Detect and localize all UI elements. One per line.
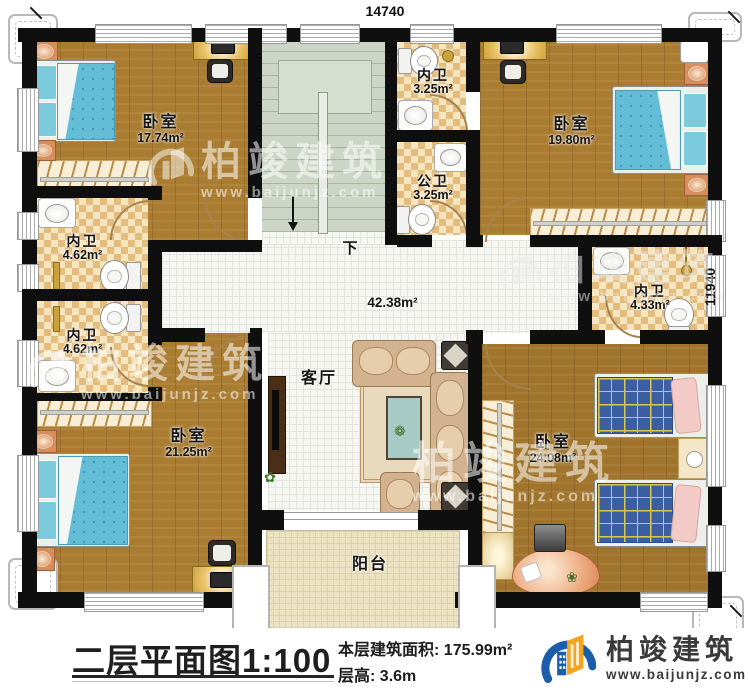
room-label-bath-left-lower: 内卫 4.62m² bbox=[40, 328, 125, 357]
headboard-cushion bbox=[683, 93, 707, 128]
stairs-down-label: 下 bbox=[336, 241, 366, 258]
room-label-hall-area: 42.38m² bbox=[340, 296, 445, 311]
window bbox=[17, 212, 39, 240]
room-area: 3.25m² bbox=[398, 189, 468, 203]
wall-segment bbox=[248, 510, 284, 530]
nightstand bbox=[684, 62, 710, 85]
nightstand bbox=[684, 174, 710, 196]
room-label-balcony: 阳台 bbox=[330, 556, 410, 574]
sink bbox=[398, 100, 433, 131]
room-area: 17.74m² bbox=[103, 132, 218, 146]
window bbox=[706, 385, 726, 487]
stair-arrow-head bbox=[288, 222, 298, 231]
window bbox=[640, 592, 708, 612]
room-label-bath-left-upper: 内卫 4.62m² bbox=[40, 234, 125, 263]
room-label-living: 客厅 bbox=[288, 370, 350, 388]
wall-segment bbox=[18, 592, 84, 608]
room-area: 4.33m² bbox=[608, 299, 692, 313]
wall-segment bbox=[285, 28, 300, 42]
light-pull bbox=[685, 247, 687, 267]
dimension-right: 11940 bbox=[702, 248, 722, 326]
room-label-bath-right: 内卫 4.33m² bbox=[608, 284, 692, 313]
desk-chair bbox=[208, 540, 236, 566]
room-name: 卧室 bbox=[495, 434, 611, 452]
window bbox=[95, 24, 192, 44]
desk-chair bbox=[207, 59, 233, 83]
wardrobe bbox=[530, 208, 710, 237]
end-table bbox=[441, 341, 470, 370]
floor-plan-page: ❀ ✿ ❁ bbox=[0, 0, 750, 697]
wall-segment bbox=[22, 150, 37, 212]
window bbox=[17, 88, 39, 152]
window bbox=[84, 592, 204, 612]
wall-segment bbox=[148, 240, 262, 252]
brand-logo-icon bbox=[540, 630, 596, 688]
sink bbox=[434, 143, 467, 172]
wall-segment bbox=[150, 328, 205, 342]
wall-segment bbox=[708, 485, 722, 525]
down-label: 下 bbox=[336, 241, 366, 258]
room-area: 42.38m² bbox=[340, 296, 445, 311]
sliding-door bbox=[284, 512, 418, 520]
wall-segment bbox=[22, 530, 37, 592]
wall-segment bbox=[466, 130, 480, 235]
wall-segment bbox=[708, 28, 722, 200]
room-name: 卧室 bbox=[509, 116, 634, 134]
plan-scale: 1:100 bbox=[242, 642, 331, 679]
room-label-bath-top: 内卫 3.25m² bbox=[398, 68, 468, 97]
room-name: 卧室 bbox=[131, 428, 246, 446]
plant-icon: ❁ bbox=[394, 424, 406, 438]
wall-segment bbox=[248, 28, 262, 198]
pillow bbox=[670, 484, 702, 543]
wall-segment bbox=[22, 289, 162, 301]
stair-direction-arrow bbox=[292, 196, 294, 222]
monitor bbox=[534, 524, 566, 552]
plant-icon: ❀ bbox=[566, 570, 578, 584]
floor-height-value: 3.6m bbox=[380, 668, 416, 685]
wall-segment bbox=[248, 333, 262, 592]
floor-height-line: 层高: 3.6m bbox=[338, 662, 416, 686]
sink bbox=[593, 247, 630, 275]
sofa-loveseat bbox=[352, 340, 436, 387]
floor-area-label: 本层建筑面积: bbox=[338, 642, 439, 659]
wall-segment bbox=[385, 28, 397, 245]
end-table bbox=[441, 482, 470, 511]
wall-segment bbox=[466, 28, 480, 92]
plant-icon: ✿ bbox=[264, 470, 276, 484]
room-label-bath-public: 公卫 3.25m² bbox=[398, 174, 468, 203]
room-label-bedroom-tr: 卧室 19.80m² bbox=[509, 116, 634, 147]
mattress bbox=[58, 456, 128, 545]
wall-segment bbox=[22, 186, 162, 198]
room-name: 阳台 bbox=[330, 556, 410, 574]
caption-bar: 二层平面图1:100 本层建筑面积: 175.99m² 层高: 3.6m bbox=[0, 628, 750, 697]
wall-segment bbox=[190, 28, 205, 42]
sink bbox=[38, 198, 76, 228]
dimension-top: 14740 bbox=[340, 3, 430, 19]
window bbox=[17, 455, 39, 532]
plan-title-text: 二层平面图 bbox=[72, 642, 242, 679]
window bbox=[556, 24, 662, 44]
wall-segment bbox=[706, 592, 722, 608]
wall-segment bbox=[530, 235, 722, 247]
brand-website: www.baijunjz.com bbox=[606, 668, 747, 682]
headboard-cushion bbox=[683, 131, 707, 166]
window bbox=[300, 24, 360, 44]
light-pull-knob bbox=[681, 265, 692, 276]
window bbox=[205, 24, 287, 44]
floor-height-label: 层高: bbox=[338, 668, 375, 685]
room-label-bedroom-br: 卧室 24.08m² bbox=[495, 434, 611, 465]
wall-segment bbox=[397, 130, 466, 142]
room-name: 卧室 bbox=[103, 114, 218, 132]
wardrobe bbox=[482, 400, 514, 534]
room-area: 19.80m² bbox=[509, 134, 634, 148]
stair-railing bbox=[318, 92, 328, 234]
pillow bbox=[670, 377, 702, 434]
shower-rail bbox=[53, 262, 60, 290]
wall-segment bbox=[530, 330, 605, 344]
floor-area-value: 175.99m² bbox=[444, 642, 513, 659]
room-area: 4.62m² bbox=[40, 249, 125, 263]
wall-segment bbox=[250, 328, 262, 342]
window bbox=[17, 340, 39, 387]
floor-area-line: 本层建筑面积: 175.99m² bbox=[338, 636, 512, 660]
mattress bbox=[597, 483, 673, 543]
balcony-floor bbox=[266, 530, 460, 636]
room-area: 4.62m² bbox=[40, 343, 125, 357]
room-label-bedroom-tl: 卧室 17.74m² bbox=[103, 114, 218, 145]
room-label-bedroom-bl: 卧室 21.25m² bbox=[131, 428, 246, 459]
window bbox=[17, 264, 39, 292]
double-bed bbox=[28, 453, 130, 547]
room-area: 21.25m² bbox=[131, 446, 246, 460]
room-name: 客厅 bbox=[288, 370, 350, 388]
wall-segment bbox=[22, 28, 37, 88]
brand-logo: 柏竣建筑 www.baijunjz.com bbox=[540, 630, 747, 688]
brand-name: 柏竣建筑 bbox=[606, 636, 747, 664]
wall-segment bbox=[468, 344, 482, 592]
wall-segment bbox=[418, 510, 482, 530]
wall-segment bbox=[358, 28, 410, 42]
wall-segment bbox=[466, 235, 483, 247]
title-underline-thin bbox=[72, 681, 334, 682]
mattress bbox=[597, 377, 673, 434]
desk-chair bbox=[500, 60, 526, 84]
wall-segment bbox=[397, 235, 432, 247]
wall-segment bbox=[640, 330, 722, 344]
window bbox=[706, 525, 726, 572]
corner-unit bbox=[680, 40, 709, 63]
title-underline bbox=[72, 675, 334, 678]
wall-segment bbox=[708, 570, 722, 592]
twin-bed bbox=[594, 373, 710, 438]
twin-bed bbox=[594, 479, 710, 547]
room-area: 24.08m² bbox=[495, 452, 611, 466]
wall-segment bbox=[22, 393, 162, 401]
wall-segment bbox=[22, 238, 37, 264]
sink bbox=[38, 360, 76, 392]
wall-segment bbox=[578, 247, 592, 333]
room-area: 3.25m² bbox=[398, 83, 468, 97]
tv-icon bbox=[272, 390, 279, 450]
wall-segment bbox=[466, 330, 483, 344]
window bbox=[410, 24, 454, 44]
light-pull bbox=[442, 50, 454, 62]
